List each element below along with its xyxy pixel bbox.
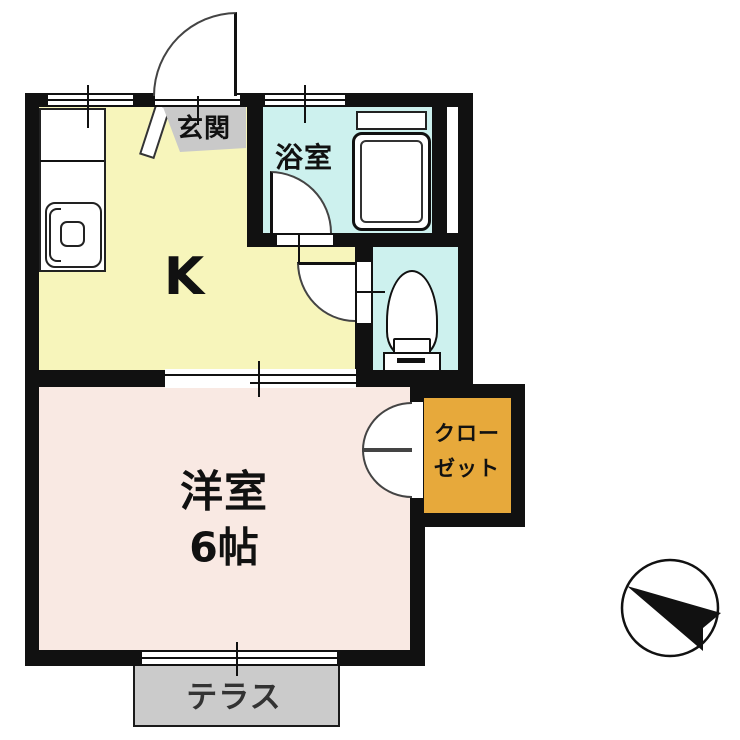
western-room-label: 洋室: [180, 472, 268, 515]
k-western-door-tick: [258, 361, 260, 397]
bathroom-doorway: [277, 235, 333, 245]
entrance-door-arc: [153, 12, 237, 96]
floorplan-canvas: 玄関 浴室 K 洋室 6帖 クロー ゼット テラス: [0, 0, 740, 740]
closet-area: [424, 398, 511, 513]
closet-doorway: [412, 402, 423, 498]
wall-bathroom-right-inner: [432, 107, 447, 233]
sink-faucet: [60, 221, 85, 247]
k-western-sliding-door: [165, 369, 356, 388]
counter-divider: [40, 160, 104, 162]
bathtub-inner: [360, 140, 423, 223]
closet-label-line1: クロー: [434, 424, 500, 445]
bathroom-label: 浴室: [275, 144, 333, 172]
genkan-label: 玄関: [177, 116, 231, 142]
closet-label-line2: ゼット: [434, 459, 500, 480]
terrace-label: テラス: [186, 683, 281, 714]
kitchen-window-tick: [87, 85, 89, 128]
wall-bathroom-left: [247, 107, 263, 247]
toilet-tank-lever: [397, 358, 425, 363]
north-arrow-icon: [612, 550, 728, 666]
bathroom-window-tick: [304, 85, 306, 123]
kitchen-window: [48, 95, 133, 105]
terrace-window-tick: [236, 642, 238, 676]
bath-shelf: [356, 111, 427, 130]
terrace-window: [142, 652, 337, 664]
western-room-size: 6帖: [189, 528, 259, 569]
kitchen-label: K: [164, 251, 204, 303]
